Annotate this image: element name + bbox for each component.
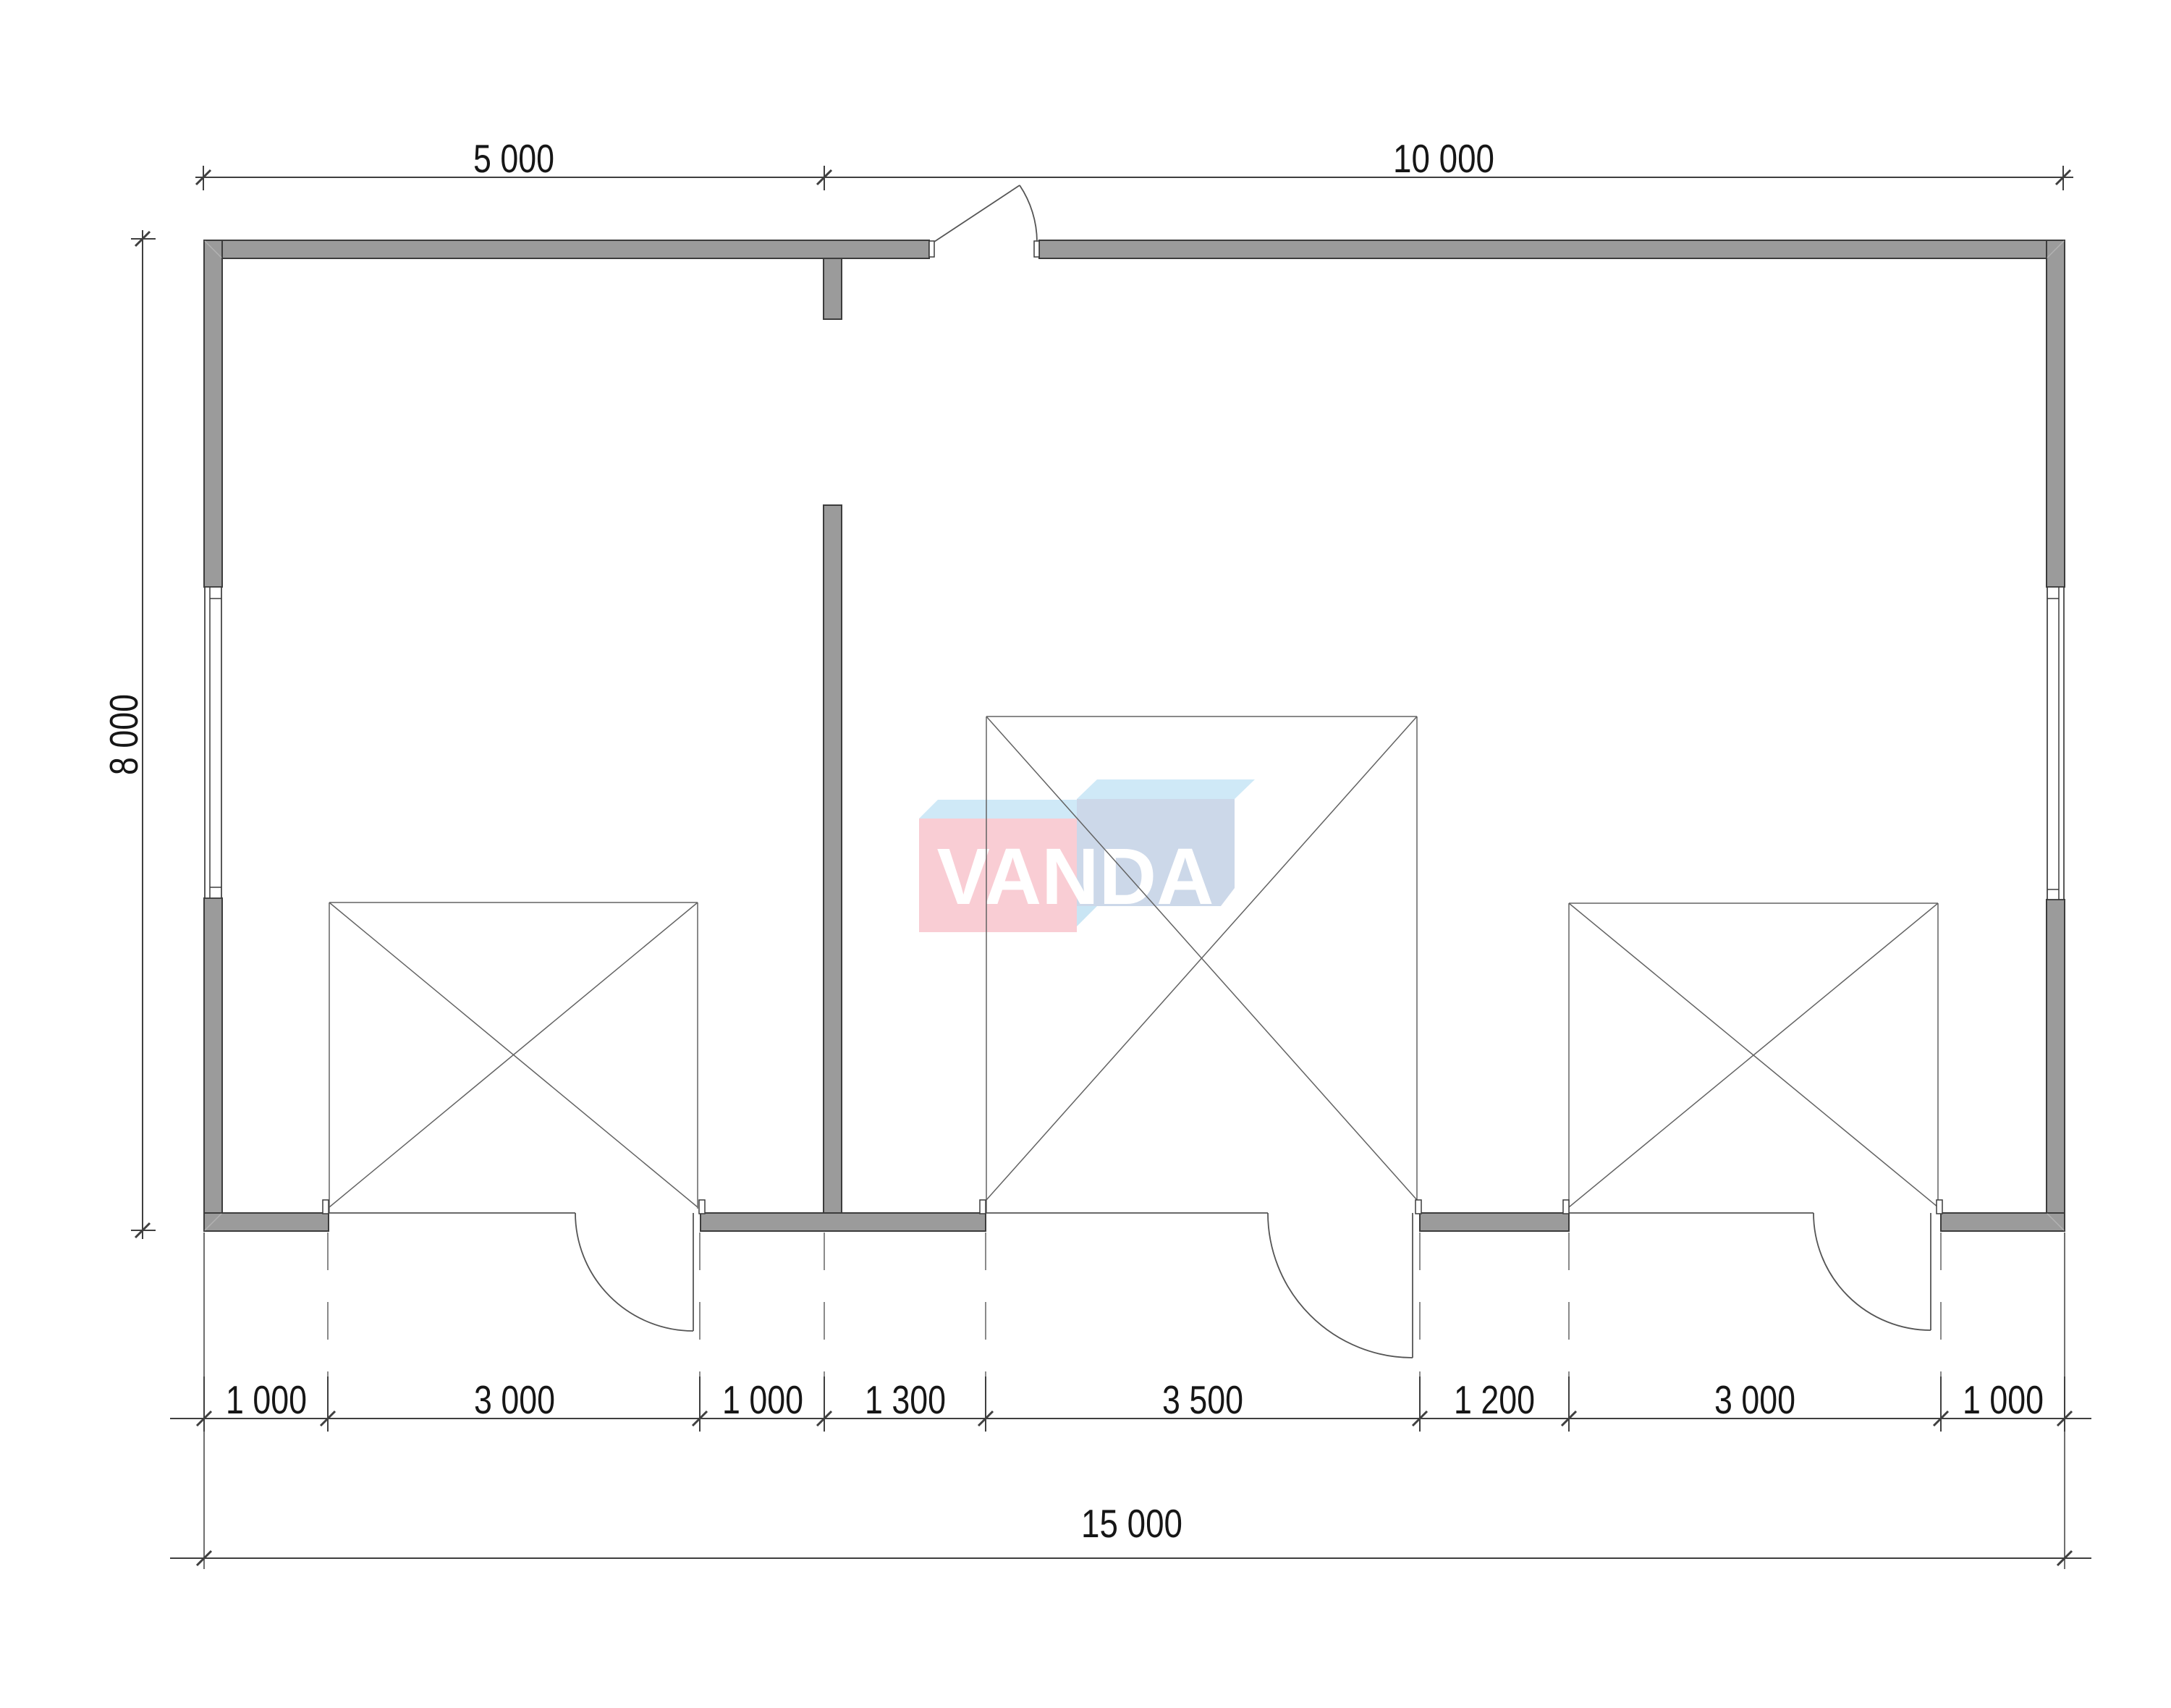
svg-text:3 000: 3 000 <box>1714 1377 1795 1422</box>
svg-text:VANDA: VANDA <box>937 832 1214 921</box>
svg-text:1 000: 1 000 <box>226 1377 307 1422</box>
svg-text:1 000: 1 000 <box>722 1377 803 1422</box>
svg-text:5 000: 5 000 <box>473 136 554 181</box>
svg-text:3 500: 3 500 <box>1162 1377 1243 1422</box>
svg-text:1 300: 1 300 <box>865 1377 946 1422</box>
svg-text:15 000: 15 000 <box>1081 1501 1182 1546</box>
svg-text:3 000: 3 000 <box>474 1377 555 1422</box>
svg-text:1 200: 1 200 <box>1454 1377 1535 1422</box>
svg-text:1 000: 1 000 <box>1963 1377 2044 1422</box>
svg-text:8 000: 8 000 <box>101 694 146 775</box>
svg-text:10 000: 10 000 <box>1393 136 1494 181</box>
